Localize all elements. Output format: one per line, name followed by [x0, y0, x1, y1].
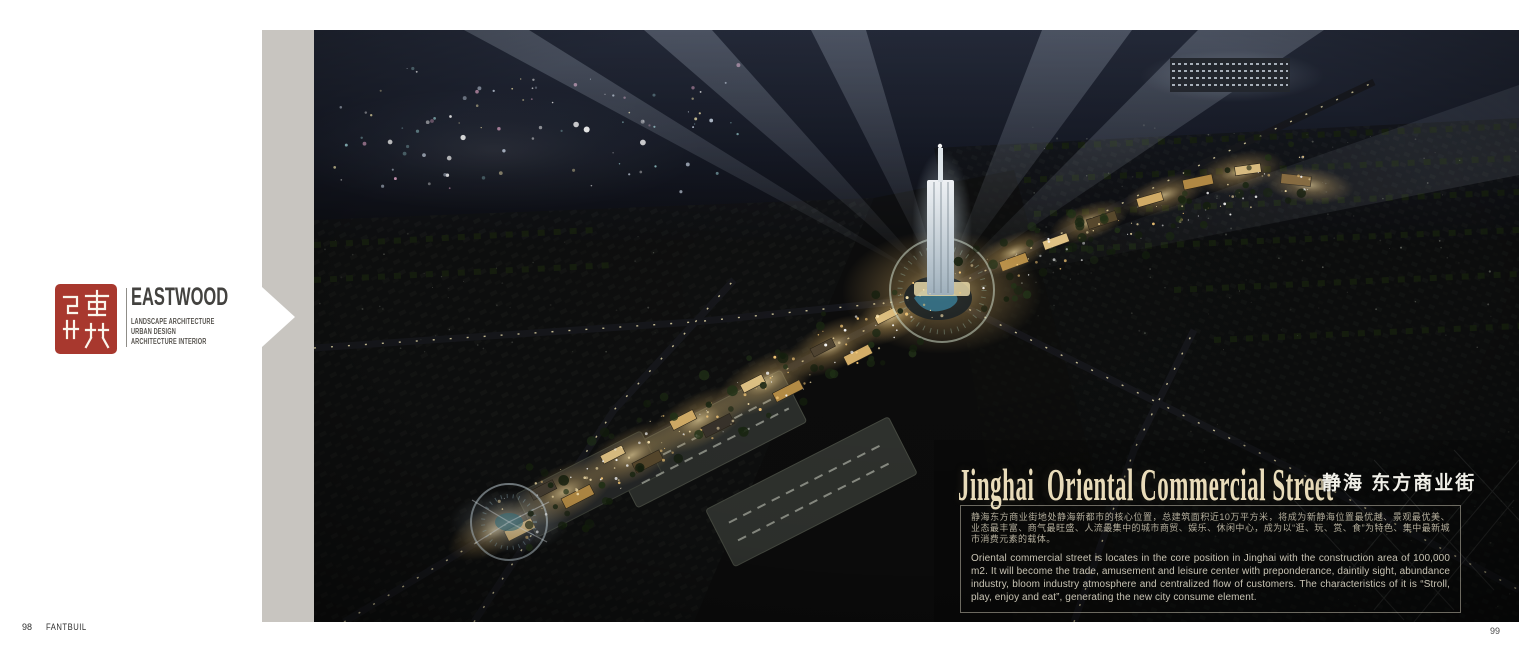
footer-brand-mark: FANTBUIL	[46, 622, 87, 632]
project-description-en: Oriental commercial street is locates in…	[971, 552, 1450, 604]
brand-divider	[126, 288, 127, 347]
project-title-zh: 静海 东方商业街	[1322, 468, 1476, 495]
project-title-en: Jinghai Oriental Commercial Street	[958, 458, 1334, 511]
page-number-right: 99	[1490, 626, 1500, 636]
brand-disciplines: LANDSCAPE ARCHITECTURE URBAN DESIGN ARCH…	[131, 317, 250, 347]
spine-arrow-icon	[262, 287, 295, 347]
night-aerial-rendering: Jinghai Oriental Commercial Street 静海 东方…	[314, 30, 1519, 622]
brand-name: EASTWOOD	[131, 283, 228, 312]
footer-left: 98 FANTBUIL	[22, 622, 94, 632]
seal-icon	[55, 284, 117, 354]
project-description-box: 静海东方商业街地处静海新都市的核心位置，总建筑面积近10万平方米，将成为新静海位…	[960, 505, 1461, 613]
page-number-left: 98	[22, 622, 32, 632]
brand-discipline: URBAN DESIGN	[131, 327, 214, 337]
brand-seal-stamp	[55, 284, 117, 354]
brand-discipline: LANDSCAPE ARCHITECTURE	[131, 317, 214, 327]
project-description-zh: 静海东方商业街地处静海新都市的核心位置，总建筑面积近10万平方米，将成为新静海位…	[971, 512, 1450, 545]
brand-discipline: ARCHITECTURE INTERIOR	[131, 337, 214, 347]
